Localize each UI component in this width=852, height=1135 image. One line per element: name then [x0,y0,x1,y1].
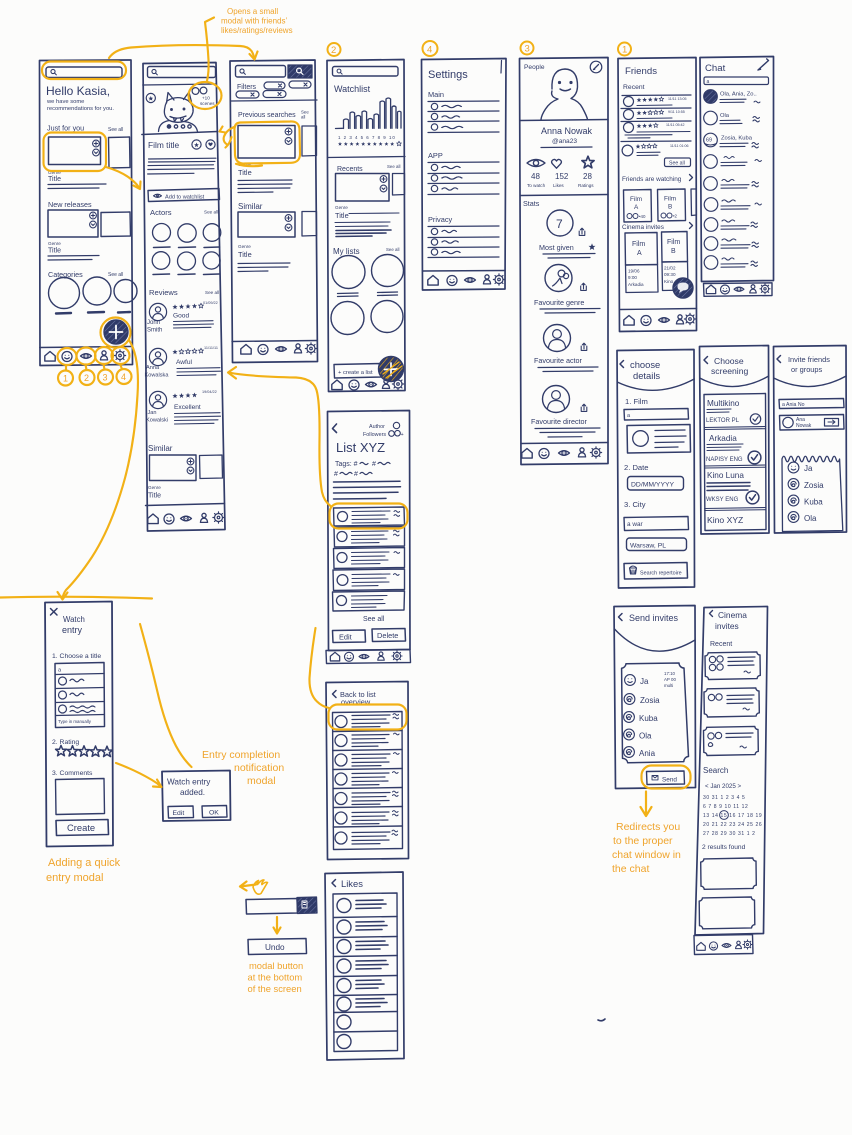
svg-text:+ create a list: + create a list [338,370,373,376]
svg-text:Favourite genre: Favourite genre [534,298,584,307]
svg-text:Kino: Kino [664,279,674,284]
svg-text:Ja: Ja [804,464,813,473]
svg-text:Friends are watching: Friends are watching [622,176,682,183]
svg-text:A: A [634,204,639,211]
svg-text:Cinema: Cinema [718,610,747,620]
svg-text:See all: See all [387,164,400,169]
svg-text:Kowalska: Kowalska [145,373,170,379]
svg-text:Title: Title [48,248,61,255]
svg-text:3: 3 [103,373,108,383]
svg-text:APP: APP [428,151,443,160]
svg-text:Type in manually: Type in manually [58,719,92,724]
svg-text:choose: choose [630,359,660,370]
svg-text:Ania: Ania [639,749,656,758]
svg-text:9/11 10:55: 9/11 10:55 [668,110,685,114]
svg-text:09:30: 09:30 [664,272,676,277]
svg-text:Arkadia: Arkadia [628,282,644,287]
svg-text:#: # [334,471,338,478]
svg-text:Delete: Delete [377,631,398,640]
svg-text:we have some: we have some [46,99,84,105]
svg-text:Likes: Likes [553,183,564,188]
svg-text:the chat: the chat [612,863,649,875]
svg-text:Film: Film [630,196,642,203]
svg-text:Film: Film [632,241,645,248]
svg-text:11/11/11: 11/11/11 [204,346,218,350]
svg-text:1. Film: 1. Film [625,397,648,406]
svg-text:6 7 8 9 10 11 12: 6 7 8 9 10 11 12 [703,804,748,810]
svg-text:1: 1 [622,45,627,56]
svg-text:invites: invites [715,621,739,631]
svg-text:+: + [401,432,404,438]
svg-text:Edit: Edit [339,633,352,642]
svg-text:Opens a small: Opens a small [227,7,278,16]
svg-text:2. Rating: 2. Rating [52,739,79,746]
svg-text:Ola: Ola [804,514,817,523]
svg-text:?: ? [310,903,314,910]
svg-text:•40: •40 [639,214,646,219]
svg-text:to the proper: to the proper [613,835,673,847]
svg-text:Anna: Anna [146,365,160,371]
svg-text:Genre: Genre [148,485,161,490]
svg-text:Chat: Chat [705,63,726,74]
svg-text:2. Date: 2. Date [624,463,648,472]
svg-text:69: 69 [706,138,712,144]
svg-text:Likes: Likes [341,878,363,889]
svg-text:Zosia: Zosia [640,696,660,705]
svg-text:List XYZ: List XYZ [336,440,385,455]
svg-text:Add to watchlist: Add to watchlist [165,195,205,201]
svg-text:2: 2 [331,45,336,56]
svg-text:Filters: Filters [237,84,257,91]
svg-text:2: 2 [84,373,89,383]
svg-text:9:00: 9:00 [628,275,637,280]
svg-text:Send invites: Send invites [629,613,679,623]
svg-text:11/11 01:06: 11/11 01:06 [670,144,688,148]
svg-text:20 21 22 23 24 25 26: 20 21 22 23 24 25 26 [703,822,762,828]
svg-text:Nowak: Nowak [796,423,812,429]
svg-text:Ja: Ja [640,677,649,686]
svg-text:Genre: Genre [238,244,251,249]
svg-text:Followers: Followers [363,432,386,438]
svg-text:My lists: My lists [333,247,360,256]
svg-text:Title: Title [335,211,349,220]
svg-text:Cinema invites: Cinema invites [622,224,664,231]
svg-text:Similar: Similar [238,202,263,211]
svg-text:Arkadia: Arkadia [709,434,737,443]
svg-text:Zosia: Zosia [804,481,824,490]
svg-text:Title: Title [48,176,61,183]
svg-text:Ola: Ola [720,113,730,119]
svg-text:Adding a quick: Adding a quick [48,857,121,869]
svg-text:B: B [668,204,672,211]
svg-text:Kino Luna: Kino Luna [707,471,744,480]
svg-text:Most given: Most given [539,243,574,252]
svg-text:Kuba: Kuba [804,498,823,507]
svg-text:See all: See all [386,247,399,252]
svg-text:#: # [372,461,376,468]
svg-text:John: John [147,320,160,326]
svg-text:Friends: Friends [625,66,657,77]
svg-text:AP 00: AP 00 [664,677,676,682]
svg-text:See all: See all [669,161,685,167]
svg-text:Ola: Ola [639,732,652,741]
svg-text:a: a [707,79,710,85]
svg-text:B: B [671,248,676,255]
svg-text:See all: See all [363,616,385,623]
svg-text:13 14 15 16 17 18 19: 13 14 15 16 17 18 19 [703,813,762,819]
svg-text:11/11 13:05: 11/11 13:05 [668,97,686,101]
svg-text:Previous searches: Previous searches [238,112,296,119]
svg-text:scenes: scenes [200,101,215,106]
svg-text:See all: See all [108,127,123,133]
svg-text:entry modal: entry modal [46,872,103,884]
svg-text:Title: Title [238,250,252,259]
svg-text:See all: See all [205,290,219,295]
svg-text:Film: Film [664,196,676,203]
svg-text:Title: Title [238,168,252,177]
svg-text:•2: •2 [673,214,678,219]
svg-text:Ratings: Ratings [578,183,594,188]
svg-text:Stats: Stats [523,199,540,208]
svg-text:Tags: #: Tags: # [335,461,358,468]
svg-text:People: People [524,64,545,71]
svg-text:Watchlist: Watchlist [334,84,371,94]
svg-text:or groups: or groups [791,365,823,374]
svg-text:Excellent: Excellent [174,404,201,411]
svg-text:Author: Author [369,424,385,430]
svg-text:Search: Search [703,766,728,775]
svg-text:modal: modal [247,775,276,787]
svg-text:New releases: New releases [48,200,92,209]
svg-text:#: # [354,471,358,478]
svg-text:of the screen: of the screen [248,983,302,994]
svg-text:WKSY ENG: WKSY ENG [706,497,739,503]
svg-text:48: 48 [531,172,540,181]
svg-text:DD/MM/YYYY: DD/MM/YYYY [631,482,675,489]
svg-text:Just for you: Just for you [47,124,84,133]
svg-text:recommendations for you.: recommendations for you. [47,106,114,112]
svg-text:28: 28 [583,172,592,181]
svg-text:modal with friends’: modal with friends’ [221,17,287,26]
svg-text:01/09/22: 01/09/22 [203,301,218,305]
svg-text:Ola, Ania, Zo..: Ola, Ania, Zo.. [720,92,757,98]
svg-text:chat window in: chat window in [612,849,681,861]
svg-text:A: A [637,250,642,257]
svg-text:Send: Send [662,777,677,784]
svg-text:Genre: Genre [48,241,61,246]
svg-text:See all: See all [108,272,123,278]
svg-text:a Ania No: a Ania No [782,402,805,408]
svg-text:Privacy: Privacy [428,215,453,224]
svg-text:Anna Nowak: Anna Nowak [541,126,593,136]
svg-text:Actors: Actors [150,208,172,217]
svg-text:Favourite actor: Favourite actor [534,356,583,365]
svg-text:Film: Film [667,239,680,246]
svg-text:added.: added. [180,788,205,797]
svg-text:Similar: Similar [148,444,173,453]
svg-text:Kino XYZ: Kino XYZ [707,515,743,525]
svg-text:See all: See all [204,210,218,215]
svg-text:+10: +10 [202,96,210,101]
svg-text:Redirects you: Redirects you [616,821,680,833]
svg-text:3. City: 3. City [624,500,646,509]
svg-text:Watch entry: Watch entry [167,778,211,787]
svg-text:1: 1 [63,374,68,384]
svg-text:@ana23: @ana23 [552,138,577,145]
svg-text:Recent: Recent [623,84,645,91]
svg-text:Recents: Recents [337,166,363,173]
svg-text:Awful: Awful [176,359,193,366]
svg-text:Smith: Smith [147,328,162,334]
svg-text:152: 152 [555,172,569,181]
svg-text:Multikino: Multikino [707,399,740,408]
svg-text:details: details [633,370,660,381]
svg-text:Undo: Undo [265,943,285,952]
svg-text:< Jan 2025 >: < Jan 2025 > [705,783,742,790]
svg-text:entry: entry [62,625,83,635]
svg-text:4: 4 [427,45,432,56]
svg-text:1 2 3 4 5 6 7 8 9 10: 1 2 3 4 5 6 7 8 9 10 [338,135,396,140]
svg-text:Hello Kasia,: Hello Kasia, [46,84,110,98]
svg-text:Recent: Recent [710,641,732,648]
svg-text:multi: multi [664,683,673,688]
svg-text:Choose: Choose [714,356,744,366]
svg-text:Edit: Edit [173,810,185,817]
svg-text:at the bottom: at the bottom [248,972,303,983]
svg-text:modal button: modal button [249,960,303,971]
svg-text:Main: Main [428,90,444,99]
svg-text:21/02: 21/02 [664,266,676,271]
svg-text:Title: Title [148,493,161,500]
svg-text:OK: OK [209,810,219,817]
svg-text:all: all [301,115,305,120]
svg-text:Entry completion: Entry completion [202,749,280,761]
svg-text:4: 4 [121,372,126,382]
svg-text:30 31 1 2 3 4 5: 30 31 1 2 3 4 5 [703,795,745,801]
svg-text:likes/ratings/reviews: likes/ratings/reviews [221,26,293,35]
svg-text:7: 7 [556,217,563,231]
svg-text:19/06: 19/06 [628,269,640,274]
svg-text:Film title: Film title [148,140,180,150]
svg-text:NAPISY ENG: NAPISY ENG [706,457,743,463]
svg-text:Create: Create [67,822,95,833]
svg-text:To watch: To watch [527,183,546,188]
svg-text:Kowalski: Kowalski [146,418,168,424]
svg-text:Search repertoire: Search repertoire [640,571,682,577]
svg-text:2 results found: 2 results found [702,844,746,851]
svg-text:Settings: Settings [428,69,468,81]
svg-text:1. Choose a title: 1. Choose a title [52,653,101,660]
svg-text:3: 3 [525,44,530,55]
svg-text:screening: screening [711,366,748,376]
svg-text:Warsaw, PL: Warsaw, PL [630,543,666,550]
svg-text:17:10: 17:10 [664,671,676,676]
svg-text:Watch: Watch [63,615,85,624]
svg-text:Reviews: Reviews [149,288,178,297]
svg-text:Genre: Genre [335,205,348,210]
svg-text:19/04/22: 19/04/22 [202,390,217,394]
svg-text:Kuba: Kuba [639,714,658,723]
svg-text:Zosia, Kuba: Zosia, Kuba [721,136,753,142]
svg-text:Invite friends: Invite friends [788,355,830,364]
svg-text:LEKTOR PL: LEKTOR PL [706,418,740,424]
svg-text:Jan: Jan [148,410,157,416]
svg-text:notification: notification [234,762,284,774]
svg-text:11/11 05:42: 11/11 05:42 [666,123,684,127]
svg-text:a war: a war [627,521,643,528]
svg-text:Favourite director: Favourite director [531,417,588,426]
svg-text:Good: Good [173,313,189,320]
svg-text:3. Comments: 3. Comments [52,770,93,777]
svg-text:27 28 29 30 31 1 2: 27 28 29 30 31 1 2 [703,831,756,837]
